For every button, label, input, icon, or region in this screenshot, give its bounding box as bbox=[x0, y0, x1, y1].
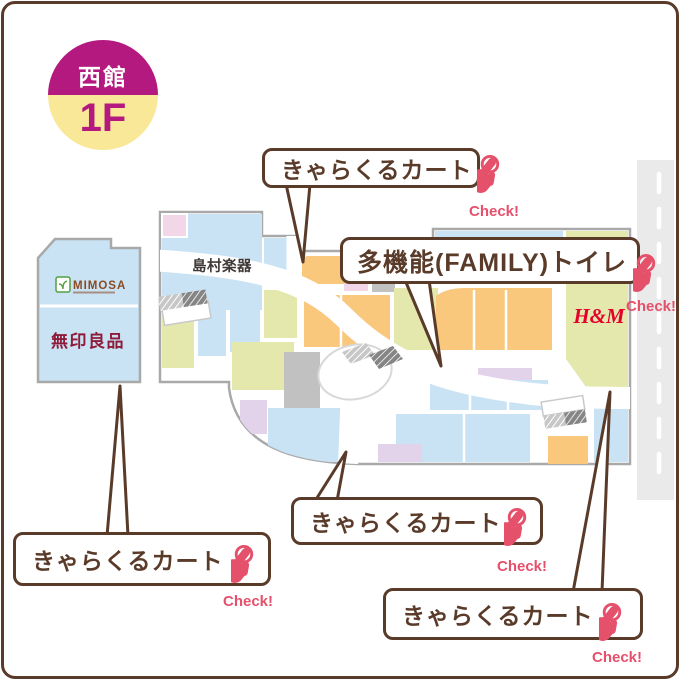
store-label-mimosa: MIMOSA bbox=[73, 280, 126, 292]
mimosa-tagline bbox=[73, 292, 115, 294]
store-label-muji: 無印良品 bbox=[51, 331, 125, 351]
tap-check-icon[interactable] bbox=[633, 252, 671, 302]
tap-check-icon[interactable] bbox=[477, 153, 515, 203]
check-label[interactable]: Check! bbox=[626, 298, 676, 315]
tap-check-icon[interactable] bbox=[504, 506, 542, 556]
callout-cart-right[interactable]: きゃらくるカート Check! bbox=[383, 588, 643, 640]
check-label[interactable]: Check! bbox=[592, 649, 642, 666]
tail-cart-left bbox=[107, 386, 128, 536]
store-label-hm: H&M bbox=[572, 304, 626, 328]
callout-label: きゃらくるカート bbox=[386, 597, 594, 631]
check-label[interactable]: Check! bbox=[497, 558, 547, 575]
callout-cart-left[interactable]: きゃらくるカート Check! bbox=[13, 532, 271, 586]
tap-check-icon[interactable] bbox=[231, 543, 269, 593]
callout-label: きゃらくるカート bbox=[294, 504, 502, 538]
store-label-shimamura: 島村楽器 bbox=[192, 257, 252, 275]
callout-cart-top[interactable]: きゃらくるカート Check! bbox=[262, 148, 480, 188]
building-west-annex: MIMOSA 無印良品 bbox=[38, 239, 140, 382]
mimosa-logo: MIMOSA bbox=[56, 277, 126, 294]
callout-cart-center[interactable]: きゃらくるカート Check! bbox=[291, 497, 543, 545]
check-label[interactable]: Check! bbox=[469, 203, 519, 220]
callout-label: きゃらくるカート bbox=[265, 151, 473, 185]
road bbox=[637, 160, 674, 500]
tap-check-icon[interactable] bbox=[599, 601, 637, 651]
check-label[interactable]: Check! bbox=[223, 593, 273, 610]
callout-family-toilet[interactable]: 多機能(FAMILY)トイレ Check! bbox=[340, 237, 640, 284]
callout-label: 多機能(FAMILY)トイレ bbox=[343, 243, 627, 279]
callout-label: きゃらくるカート bbox=[16, 542, 224, 576]
floor-badge: 西館 1F bbox=[48, 40, 158, 150]
floor-guide-page: 西館 1F bbox=[0, 0, 680, 680]
